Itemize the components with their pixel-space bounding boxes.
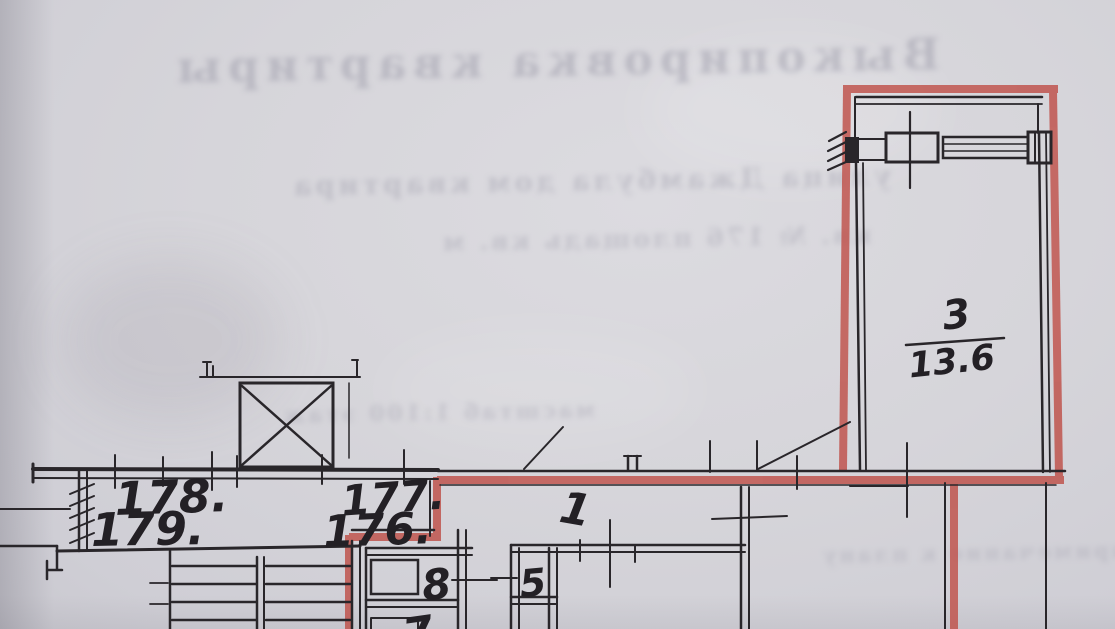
- elevator-shaft: [200, 360, 360, 467]
- rooms-dim-ticks: [580, 520, 635, 587]
- window-glazing: [943, 144, 1028, 151]
- room-5-label: 5: [518, 560, 548, 606]
- floor-plan-photo: Выкопировка квартиры улица Джамбула дом …: [0, 0, 1115, 629]
- room-3-area-label: 13.6: [907, 338, 997, 387]
- bathtub: [371, 560, 418, 594]
- red-room3-right-wall: [1053, 90, 1059, 477]
- stairs-treads-left: [172, 566, 256, 620]
- stairs-side-ticks: [150, 583, 168, 604]
- unit-179-label: 179.: [91, 501, 205, 557]
- room3-left-wall-inner: [863, 163, 866, 470]
- door-swing-lines: [524, 422, 850, 469]
- shaft-x-cross: [242, 386, 331, 465]
- room3-right-wall: [1039, 133, 1043, 472]
- room-8-label: 8: [419, 559, 453, 611]
- room-3-number-label: 3: [940, 291, 973, 340]
- stairs: [150, 551, 350, 629]
- window-detail: [828, 112, 1051, 188]
- unit-176-label: 176.: [322, 503, 432, 558]
- window-frame: [943, 137, 1028, 158]
- shaft-right-hook: [352, 360, 358, 377]
- stairs-treads-right: [266, 566, 350, 620]
- corridor-top-wall: [33, 469, 438, 470]
- room-3: [828, 97, 1051, 472]
- room3-left-wall: [856, 163, 860, 470]
- balcony-door: [886, 133, 938, 162]
- floorplan-drawing: 3 13.6 178. 179. 177. 176. 8 5 1 7: [0, 0, 1115, 629]
- wall-pier-solid: [845, 137, 859, 163]
- shaft-left-ticks: [203, 362, 213, 377]
- room3-right-wall-inner: [1046, 133, 1050, 472]
- room-1-label: 1: [556, 482, 595, 538]
